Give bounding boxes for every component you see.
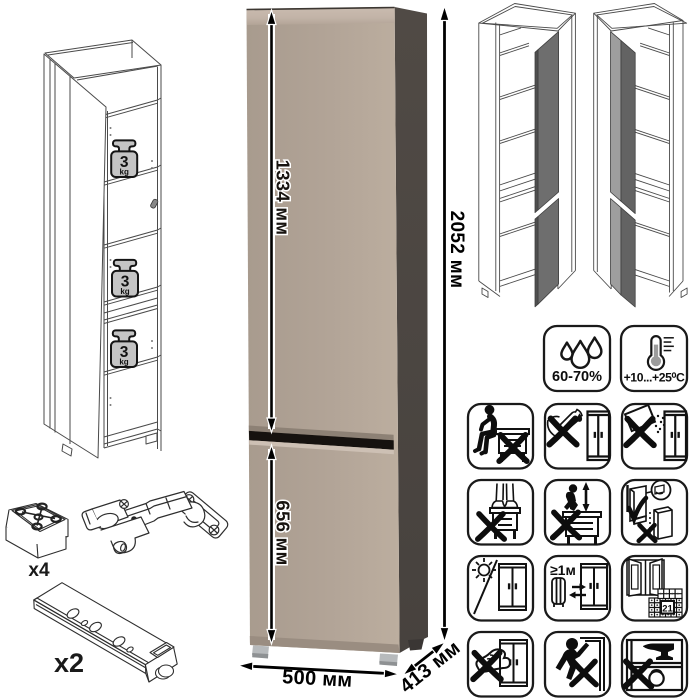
svg-text:≥1м: ≥1м: [550, 562, 576, 578]
svg-text:+10...+25⁰С: +10...+25⁰С: [624, 371, 685, 385]
svg-text:2052 мм: 2052 мм: [446, 211, 467, 289]
svg-text:656 мм: 656 мм: [273, 500, 294, 565]
svg-text:x2: x2: [54, 648, 84, 678]
svg-text:kg: kg: [119, 358, 128, 367]
svg-text:kg: kg: [120, 287, 129, 296]
svg-text:kg: kg: [120, 168, 129, 177]
svg-text:500 мм: 500 мм: [282, 666, 353, 692]
svg-text:60-70%: 60-70%: [552, 369, 602, 385]
svg-text:1334 мм: 1334 мм: [273, 160, 294, 236]
svg-text:x4: x4: [28, 560, 50, 581]
svg-text:21: 21: [662, 604, 673, 615]
